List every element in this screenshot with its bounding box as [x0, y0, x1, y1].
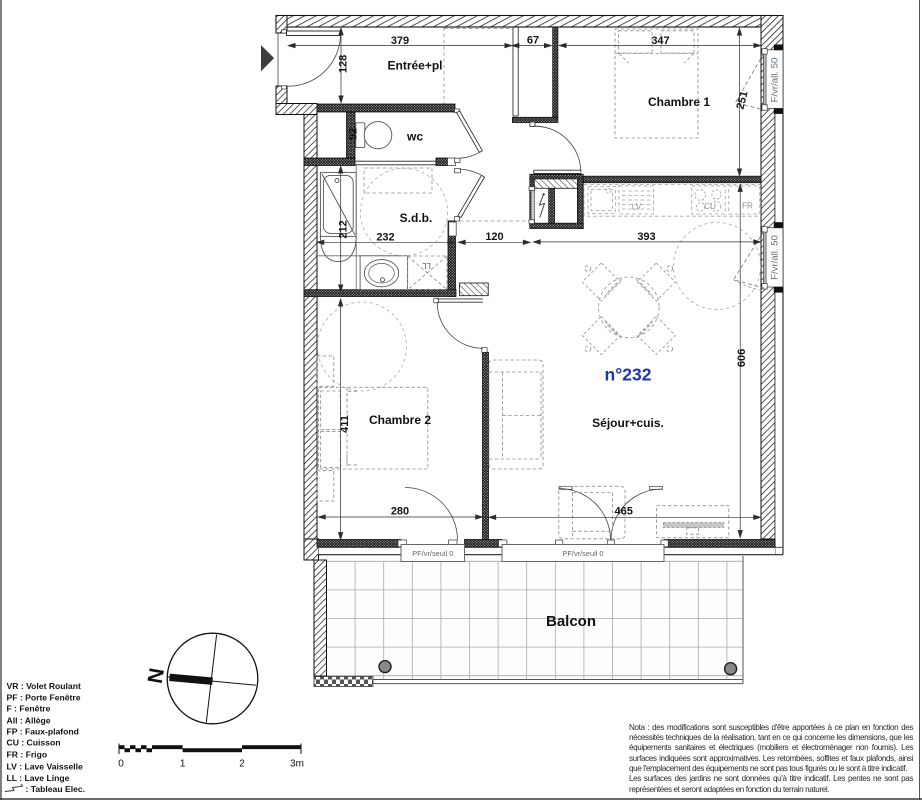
svg-text:2: 2 — [239, 759, 245, 770]
svg-text:VR : Volet Roulant: VR : Volet Roulant — [7, 681, 81, 691]
svg-text:CU: CU — [704, 202, 716, 211]
svg-text:Balcon: Balcon — [546, 613, 596, 630]
svg-text:FR: FR — [742, 202, 753, 211]
svg-text:Chambre 2: Chambre 2 — [369, 413, 431, 427]
svg-text:LV: LV — [632, 203, 642, 212]
svg-text:F/vr/all. 50: F/vr/all. 50 — [770, 235, 781, 280]
svg-text:: Tableau Elec.: : Tableau Elec. — [26, 784, 86, 794]
svg-text:LL: LL — [422, 261, 431, 270]
svg-text:465: 465 — [615, 505, 633, 517]
svg-text:All : Allège: All : Allège — [7, 715, 51, 725]
svg-text:PF/vr/seuil 0: PF/vr/seuil 0 — [562, 549, 603, 558]
svg-text:120: 120 — [485, 231, 503, 243]
svg-text:379: 379 — [391, 35, 409, 47]
svg-text:212: 212 — [338, 220, 350, 238]
svg-text:Séjour+cuis.: Séjour+cuis. — [592, 416, 664, 430]
svg-text:232: 232 — [376, 231, 394, 243]
svg-text:3m: 3m — [290, 759, 304, 770]
svg-text:Entrée+pl: Entrée+pl — [387, 58, 442, 72]
svg-text:128: 128 — [338, 55, 350, 73]
svg-text:LV : Lave Vaisselle: LV : Lave Vaisselle — [7, 762, 83, 772]
svg-text:n°232: n°232 — [605, 365, 652, 385]
svg-text:F : Fenêtre: F : Fenêtre — [7, 704, 51, 714]
svg-text:LL : Lave Linge: LL : Lave Linge — [7, 773, 70, 783]
svg-text:1: 1 — [180, 759, 186, 770]
svg-text:S.d.b.: S.d.b. — [400, 211, 433, 225]
svg-text:92: 92 — [348, 128, 360, 140]
svg-text:Chambre 1: Chambre 1 — [648, 95, 710, 109]
svg-text:PF/vr/seuil 0: PF/vr/seuil 0 — [412, 549, 453, 558]
svg-text:411: 411 — [339, 415, 351, 433]
svg-text:393: 393 — [637, 231, 655, 243]
svg-text:FR : Frigo: FR : Frigo — [7, 749, 48, 759]
svg-text:606: 606 — [736, 349, 748, 367]
svg-text:PF : Porte Fenêtre: PF : Porte Fenêtre — [7, 692, 81, 702]
svg-text:0: 0 — [118, 759, 124, 770]
svg-text:FP : Faux-plafond: FP : Faux-plafond — [7, 727, 79, 737]
svg-text:F/vr/all. 50: F/vr/all. 50 — [770, 58, 781, 103]
svg-text:280: 280 — [391, 506, 409, 518]
svg-text:wc: wc — [406, 130, 423, 144]
svg-text:CU : Cuisson: CU : Cuisson — [7, 738, 61, 748]
svg-text:347: 347 — [651, 35, 669, 47]
svg-text:67: 67 — [527, 35, 539, 47]
